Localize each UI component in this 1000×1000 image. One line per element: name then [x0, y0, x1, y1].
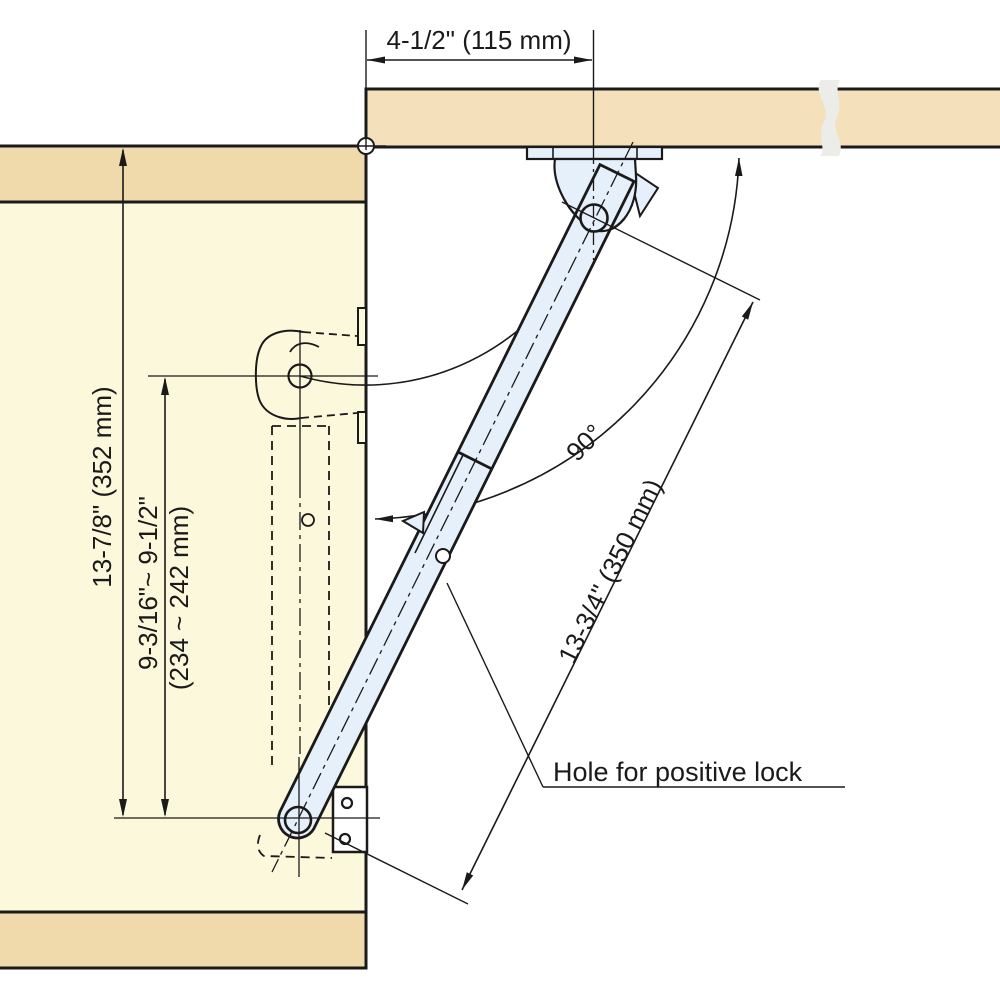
top-bracket-flange [527, 147, 662, 159]
bottom-bracket [333, 787, 367, 852]
lid-stay-installation-diagram: 4-1/2" (115 mm) 13-7/8" (352 mm) 9-3/16"… [0, 0, 1000, 1000]
hole-note-label: Hole for positive lock [553, 757, 803, 787]
dim-inner-inch-label: 9-3/16"~ 9-1/2" [133, 496, 163, 670]
dim-top-arrow-right [574, 57, 592, 64]
stored-bracket-flange-upper [358, 308, 366, 345]
dim-height-label: 13-7/8" (352 mm) [87, 386, 117, 587]
lid-panel [366, 80, 1000, 156]
positive-lock-hole [436, 549, 450, 563]
dim-arm-arrow-bottom [462, 872, 473, 890]
arc-arrow-up [735, 158, 743, 176]
dim-arm-label: 13-3/4" (350 mm) [552, 474, 668, 668]
arc-arrow-left [375, 515, 393, 522]
diagram-canvas: 4-1/2" (115 mm) 13-7/8" (352 mm) 9-3/16"… [0, 0, 1000, 1000]
side-panel-bottom-edge [0, 912, 366, 968]
lid-panel-board [366, 89, 1000, 147]
stored-bracket-flange-lower [358, 412, 366, 443]
dim-top-label: 4-1/2" (115 mm) [386, 25, 571, 55]
dim-top-arrow-left [367, 57, 385, 64]
leader-line [447, 583, 543, 787]
stored-lock-hole [302, 514, 314, 526]
dim-arm-arrow-top [742, 302, 753, 320]
bottom-pivot [285, 807, 311, 833]
stay-arm-stop-tab [403, 512, 424, 533]
dim-inner-mm-label: (234 ~ 242 mm) [164, 506, 194, 690]
bottom-bracket-screw-hole-1 [342, 798, 352, 808]
side-panel-top-edge [0, 146, 366, 202]
